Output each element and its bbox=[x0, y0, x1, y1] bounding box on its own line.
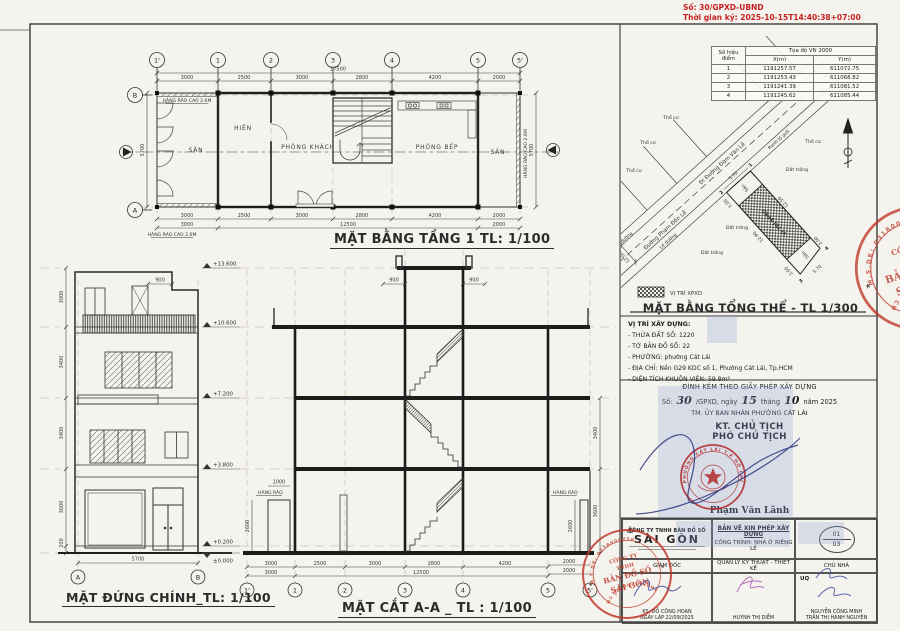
front-door-arcs bbox=[296, 191, 334, 207]
svg-text:3400: 3400 bbox=[593, 427, 599, 440]
grid-label: 2 bbox=[269, 57, 273, 65]
created-date: NGÀY LẬP 22/09/2025 bbox=[623, 615, 711, 621]
subject-plot: Sân Sân VỊ TRÍ XPXD 5.70 3.00 12.90 12.5… bbox=[713, 159, 837, 289]
svg-text:Thổ cư: Thổ cư bbox=[804, 138, 822, 145]
grid-label: 5 bbox=[476, 57, 480, 65]
section-stairs bbox=[405, 329, 463, 551]
svg-text:3000: 3000 bbox=[181, 75, 194, 81]
drawing-sheet: 1' 1 2 3 4 5 5' B A 17500 3000 2500 3000… bbox=[0, 0, 900, 631]
svg-text:3000: 3000 bbox=[181, 213, 194, 219]
signature-cell-director: KS. ĐỖ CÔNG HOAN NGÀY LẬP 22/09/2025 bbox=[622, 573, 712, 624]
fence-labels: HÀNG RÀO CAO 2.6M HÀNG RÀO CAO 2.6M HÀNG… bbox=[148, 97, 529, 238]
table-row: 1 1191257.57 611072.75 bbox=[712, 65, 876, 74]
col-point-header: Số hiệu điểm bbox=[712, 47, 746, 65]
section-door bbox=[340, 495, 347, 551]
svg-text:4200: 4200 bbox=[429, 75, 442, 81]
permit-number-line: Số: 30 /GPXD, ngày 15 tháng 10 năm 2025 bbox=[622, 394, 877, 407]
permit-kt: KT. CHỦ TỊCH bbox=[622, 422, 877, 432]
svg-text:5: 5 bbox=[546, 587, 550, 595]
boundary-label: Ranh lộ giới bbox=[766, 128, 791, 151]
svg-text:2000: 2000 bbox=[563, 568, 576, 574]
svg-text:HÀNG RÀO CAO 2.6M: HÀNG RÀO CAO 2.6M bbox=[148, 231, 197, 238]
elevation-dims-left: 3000 3400 3400 3600 200 bbox=[59, 266, 68, 555]
svg-text:5700: 5700 bbox=[132, 557, 145, 563]
svg-text:Đất trống: Đất trống bbox=[786, 166, 808, 173]
svg-text:1: 1 bbox=[748, 162, 754, 169]
svg-text:2500: 2500 bbox=[238, 75, 251, 81]
svg-text:2000: 2000 bbox=[563, 559, 576, 565]
coordinate-table: Số hiệu điểm Tọa độ VN 2000 X(m) Y(m) 1 … bbox=[711, 46, 876, 101]
permit-month: 10 bbox=[782, 394, 801, 407]
svg-text:HÀNG RÀO CAO 2.6M: HÀNG RÀO CAO 2.6M bbox=[522, 129, 529, 178]
svg-text:Thổ cư: Thổ cư bbox=[662, 114, 680, 121]
drawing-type: BẢN VẼ XIN PHÉP XÂY DỰNG bbox=[713, 526, 794, 538]
permit-no: 30 bbox=[674, 394, 693, 407]
svg-text:Đất trống: Đất trống bbox=[701, 249, 723, 256]
company-address-line bbox=[629, 546, 705, 547]
svg-text:Thổ cư: Thổ cư bbox=[639, 139, 657, 146]
location-line: - PHƯỜNG: phường Cát Lái bbox=[628, 352, 874, 363]
section-right-fence: HÀNG RÀO 2600 bbox=[551, 489, 588, 551]
table-row: 4 1191245.62 611085.44 bbox=[712, 92, 876, 101]
floor-plan-dims-top: 17500 3000 2500 3000 2800 4200 2000 bbox=[155, 67, 522, 84]
kitchen-counter bbox=[398, 101, 476, 138]
yard-label: Sân bbox=[739, 182, 750, 193]
svg-text:2500: 2500 bbox=[238, 213, 251, 219]
svg-text:Đất trống: Đất trống bbox=[726, 224, 748, 231]
svg-text:2800: 2800 bbox=[428, 561, 441, 567]
floor-plan-walls bbox=[155, 91, 522, 210]
signature-cell-owner: UQ NGUYỄN CÔNG MINH TRẦN THỊ HẠNH NGUYÊN bbox=[795, 573, 878, 624]
staircase-plan bbox=[333, 98, 392, 163]
table-row: 2 1191253.43 611068.82 bbox=[712, 74, 876, 83]
col-y-header: Y(m) bbox=[814, 56, 876, 65]
elevation-outline bbox=[75, 272, 198, 553]
gate-door-arcs bbox=[157, 103, 173, 196]
sidewalk-label: Lề đường bbox=[613, 229, 634, 249]
company-cell: ⚓ CÔNG TY TNHH BẢN ĐỒ SỐ SÀI GÒN bbox=[622, 519, 712, 559]
svg-text:4200: 4200 bbox=[429, 213, 442, 219]
site-plan-title: MẶT BẰNG TỔNG THỂ - TL 1/300 bbox=[639, 301, 863, 316]
svg-text:+10.600: +10.600 bbox=[213, 321, 237, 327]
grid-label: 5' bbox=[517, 57, 523, 65]
svg-text:A: A bbox=[76, 574, 81, 582]
svg-text:2600: 2600 bbox=[245, 520, 251, 533]
signature-cell-tech: HUỲNH THỊ DIỄM bbox=[712, 573, 795, 624]
legend-label: VỊ TRÍ XPXD bbox=[670, 290, 702, 297]
floor-plan-title: MẶT BẰNG TẦNG 1 TL: 1/100 bbox=[330, 232, 554, 249]
site-legend: VỊ TRÍ XPXD bbox=[638, 287, 702, 297]
svg-text:HÀNG RÀO: HÀNG RÀO bbox=[258, 489, 283, 496]
permit-signer-name: Phạm Văn Lãnh bbox=[622, 506, 877, 516]
section-dims-bottom: 3000 2500 3000 2800 4200 3000 12500 2000… bbox=[245, 559, 590, 578]
uq-label: UQ bbox=[800, 576, 809, 582]
role-owner: CHỦ NHÀ bbox=[795, 559, 878, 573]
section-walls bbox=[295, 270, 548, 551]
location-heading: VỊ TRÍ XÂY DỰNG: bbox=[628, 319, 874, 330]
title-block: ⚓ CÔNG TY TNHH BẢN ĐỒ SỐ SÀI GÒN BẢN VẼ … bbox=[621, 518, 877, 623]
north-arrow-icon bbox=[844, 119, 853, 168]
permit-block: ĐÍNH KÈM THEO GIẤY PHÉP XÂY DỰNG Số: 30 … bbox=[622, 383, 877, 516]
roof-doors bbox=[85, 286, 148, 315]
yard-label: Sân bbox=[800, 249, 811, 260]
svg-text:+13.600: +13.600 bbox=[213, 262, 237, 268]
svg-text:5.70: 5.70 bbox=[812, 264, 824, 275]
section-dims-right: 3400 3600 bbox=[593, 396, 602, 555]
signature-header: Số: 30/GPXD-UBND Thời gian ký: 2025-10-1… bbox=[683, 3, 861, 22]
svg-text:900: 900 bbox=[155, 278, 165, 284]
svg-text:3000: 3000 bbox=[265, 570, 278, 576]
role-director: GIÁM ĐỐC bbox=[622, 559, 712, 573]
sheet-divider bbox=[823, 539, 851, 540]
svg-text:1000: 1000 bbox=[273, 480, 286, 486]
sheet-number-circle: 01 03 bbox=[819, 526, 855, 553]
svg-text:3600: 3600 bbox=[593, 505, 599, 518]
elevation: 900 3000 3400 3400 3600 200 bbox=[58, 262, 240, 585]
room-label-hien: HIÊN bbox=[234, 124, 252, 132]
company-name-line2: SÀI GÒN bbox=[634, 534, 700, 545]
svg-text:3400: 3400 bbox=[59, 356, 65, 369]
permit-day: 15 bbox=[739, 394, 758, 407]
svg-text:2800: 2800 bbox=[356, 75, 369, 81]
svg-text:3000: 3000 bbox=[181, 222, 194, 228]
svg-text:2.00: 2.00 bbox=[813, 235, 824, 247]
svg-text:3000: 3000 bbox=[296, 213, 309, 219]
svg-text:3000: 3000 bbox=[369, 561, 382, 567]
elevation-ground-floor bbox=[85, 488, 183, 550]
owner-name-2: TRẦN THỊ HẠNH NGUYÊN bbox=[796, 615, 877, 621]
company-address-line bbox=[638, 549, 696, 550]
section-dims-900: 900 900 bbox=[381, 278, 487, 287]
table-title: Tọa độ VN 2000 bbox=[746, 47, 876, 56]
svg-text:2000: 2000 bbox=[493, 75, 506, 81]
svg-text:B: B bbox=[196, 574, 200, 582]
elevation-windows bbox=[78, 352, 188, 463]
grid-label: 1 bbox=[216, 57, 220, 65]
svg-text:B: B bbox=[133, 92, 137, 100]
svg-text:Thổ cư: Thổ cư bbox=[625, 167, 643, 174]
svg-text:+0.200: +0.200 bbox=[213, 540, 234, 546]
floor-plan: 1' 1 2 3 4 5 5' B A 17500 3000 2500 3000… bbox=[120, 53, 560, 239]
svg-text:5': 5' bbox=[587, 587, 593, 595]
role-tech: QUẢN LÝ KỸ THUẬT - THIẾT KẾ bbox=[712, 559, 795, 573]
svg-text:2800: 2800 bbox=[356, 213, 369, 219]
sheet-total: 03 bbox=[833, 541, 841, 548]
section-grid-bubbles: 1' 1 2 3 4 5 5' bbox=[240, 583, 597, 597]
svg-text:5700: 5700 bbox=[529, 144, 535, 157]
svg-text:4200: 4200 bbox=[499, 561, 512, 567]
location-info: VỊ TRÍ XÂY DỰNG: - THỬA ĐẤT SỐ: 1220 - T… bbox=[628, 319, 874, 385]
signed-time: Thời gian ký: 2025-10-15T14:40:38+07:00 bbox=[683, 13, 861, 23]
elevation-bottom: 5700 A B bbox=[71, 557, 205, 585]
svg-text:3: 3 bbox=[798, 278, 804, 285]
grid-label: 1' bbox=[154, 57, 160, 65]
table-row: 3 1191241.39 611081.52 bbox=[712, 83, 876, 92]
doc-number: Số: 30/GPXD-UBND bbox=[683, 3, 861, 13]
location-line: - ĐỊA CHỈ: Nền G29 KDC số 1, Phường Cát … bbox=[628, 363, 874, 374]
sheet-no: 01 bbox=[833, 531, 841, 538]
svg-text:200: 200 bbox=[59, 538, 65, 548]
location-line: - TỜ BẢN ĐỒ SỐ: 22 bbox=[628, 341, 874, 352]
permit-deputy: PHÓ CHỦ TỊCH bbox=[622, 432, 877, 442]
svg-text:+3.800: +3.800 bbox=[213, 463, 234, 469]
project-name: CÔNG TRÌNH: NHÀ Ở RIÊNG LẺ bbox=[713, 540, 794, 552]
section-left-fence: HÀNG RÀO 1000 2600 bbox=[245, 480, 290, 552]
svg-text:5.70: 5.70 bbox=[728, 170, 740, 181]
svg-text:3400: 3400 bbox=[59, 427, 65, 440]
sheet-number-cell: 01 03 bbox=[795, 519, 878, 559]
svg-text:900: 900 bbox=[389, 278, 399, 284]
tech-name: HUỲNH THỊ DIỄM bbox=[713, 615, 794, 621]
svg-text:4: 4 bbox=[461, 587, 465, 595]
svg-text:2500: 2500 bbox=[314, 561, 327, 567]
svg-text:900: 900 bbox=[469, 278, 479, 284]
svg-text:3000: 3000 bbox=[59, 291, 65, 304]
svg-text:2600: 2600 bbox=[568, 520, 574, 533]
col-x-header: X(m) bbox=[746, 56, 814, 65]
svg-text:3000: 3000 bbox=[296, 75, 309, 81]
room-label-san2: SÂN bbox=[491, 149, 506, 156]
grid-label: 4 bbox=[390, 57, 394, 65]
location-line: - THỬA ĐẤT SỐ: 1220 bbox=[628, 330, 874, 341]
svg-text:5700: 5700 bbox=[140, 144, 146, 157]
svg-text:2: 2 bbox=[343, 587, 347, 595]
svg-text:4: 4 bbox=[824, 245, 830, 252]
svg-text:+7.200: +7.200 bbox=[213, 392, 234, 398]
svg-text:HÀNG RÀO CAO 2.6M: HÀNG RÀO CAO 2.6M bbox=[163, 97, 212, 104]
svg-text:1: 1 bbox=[293, 587, 297, 595]
road-direction: Đi Đường Đàm Văn Lễ bbox=[698, 140, 748, 186]
room-label-bep: PHÒNG BẾP bbox=[416, 143, 459, 151]
svg-text:17500: 17500 bbox=[330, 67, 346, 73]
room-label-san: SÂN bbox=[189, 147, 204, 154]
elevation-title: MẶT ĐỨNG CHÍNH_TL: 1/100 bbox=[62, 590, 275, 607]
level-dash-lines bbox=[40, 268, 616, 553]
svg-text:3: 3 bbox=[403, 587, 407, 595]
svg-text:12500: 12500 bbox=[413, 570, 429, 576]
road-width-dim: 12.00 bbox=[614, 243, 639, 269]
roof-railing bbox=[83, 315, 195, 333]
company-logo-icon: ⚓ bbox=[626, 526, 634, 536]
grid-label: 3 bbox=[331, 57, 335, 65]
elevation-dim-900: 900 bbox=[146, 278, 174, 287]
svg-text:3600: 3600 bbox=[59, 501, 65, 514]
section-title: MẶT CẮT A-A _ TL : 1/100 bbox=[338, 601, 536, 618]
section: 900 900 HÀNG RÀO 1000 2600 HÀNG RÀO 2600… bbox=[240, 250, 602, 597]
elevation-level-markers: +13.600 +10.600 +7.200 +3.800 +0.200 ±0.… bbox=[202, 262, 240, 565]
drawing-type-cell: BẢN VẼ XIN PHÉP XÂY DỰNG CÔNG TRÌNH: NHÀ… bbox=[712, 519, 795, 559]
room-label-khach: PHÒNG KHÁCH bbox=[281, 144, 335, 151]
svg-text:±0.000: ±0.000 bbox=[213, 559, 234, 565]
svg-text:HÀNG RÀO: HÀNG RÀO bbox=[553, 489, 578, 496]
permit-heading: ĐÍNH KÈM THEO GIẤY PHÉP XÂY DỰNG bbox=[622, 383, 877, 391]
svg-text:3000: 3000 bbox=[265, 561, 278, 567]
svg-text:A: A bbox=[133, 207, 138, 215]
permit-authority: TM. ỦY BAN NHÂN PHƯỜNG CÁT LÁI bbox=[622, 409, 877, 417]
svg-text:2000: 2000 bbox=[493, 213, 506, 219]
